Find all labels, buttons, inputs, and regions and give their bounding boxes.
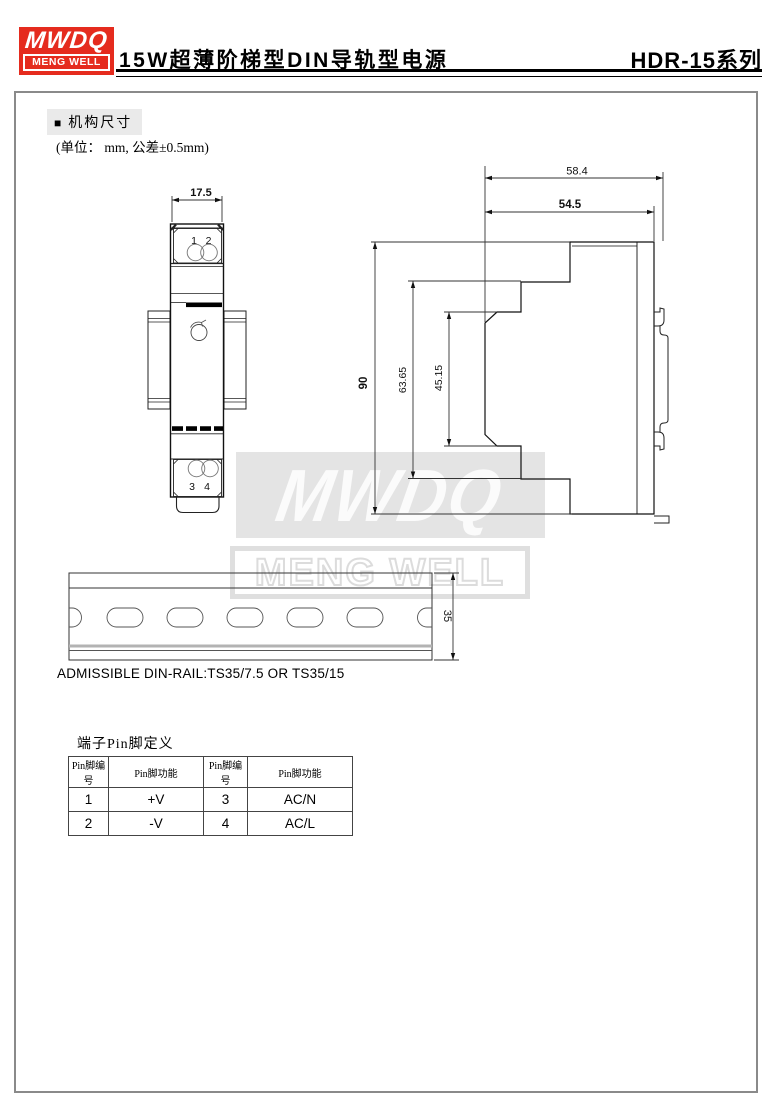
pin-table-row: 1 +V 3 AC/N [69,788,353,812]
mechanical-drawing: 1 2 3 4 17.5 [0,0,772,1112]
din-rail-drawing [69,573,432,660]
pin-table-title: 端子Pin脚定义 [77,733,174,753]
side-view-drawing [485,242,669,523]
pin-definition-table: Pin脚编号 Pin脚功能 Pin脚编号 Pin脚功能 1 +V 3 AC/N … [68,756,353,836]
side-depth-clip-dim-label: 58.4 [566,166,587,178]
pin-function-cell: +V [109,788,204,812]
pin-table-header: Pin脚编号 [204,757,248,788]
pin-table-row: 2 -V 4 AC/L [69,812,353,836]
side-height-step1-dim-label: 63.65 [397,367,409,393]
pin-function-cell: AC/N [248,788,353,812]
front-pin-3-label: 3 [189,481,195,493]
side-view-dimensions [371,166,663,514]
pin-number-cell: 1 [69,788,109,812]
pin-table-header: Pin脚编号 [69,757,109,788]
side-height-step2-dim-label: 45.15 [433,365,445,391]
front-pin-1-label: 1 [191,235,197,247]
front-pin-2-label: 2 [206,235,212,247]
front-width-dimension [172,196,222,222]
din-rail-note: ADMISSIBLE DIN-RAIL:TS35/7.5 OR TS35/15 [57,666,344,681]
pin-function-cell: -V [109,812,204,836]
datasheet-page: MWDQ MENG WELL 15W超薄阶梯型DIN导轨型电源 HDR-15系列… [0,0,772,1112]
pin-number-cell: 3 [204,788,248,812]
pin-function-cell: AC/L [248,812,353,836]
pin-number-cell: 2 [69,812,109,836]
pin-table-header-row: Pin脚编号 Pin脚功能 Pin脚编号 Pin脚功能 [69,757,353,788]
front-view-drawing [148,224,246,513]
rail-height-dim-label: 35 [441,610,453,622]
pin-table-header: Pin脚功能 [109,757,204,788]
side-depth-body-dim-label: 54.5 [559,199,582,211]
side-height-total-dim-label: 90 [358,377,370,390]
pin-number-cell: 4 [204,812,248,836]
front-width-dim-label: 17.5 [190,187,211,199]
pin-table-header: Pin脚功能 [248,757,353,788]
front-pin-4-label: 4 [204,481,210,493]
